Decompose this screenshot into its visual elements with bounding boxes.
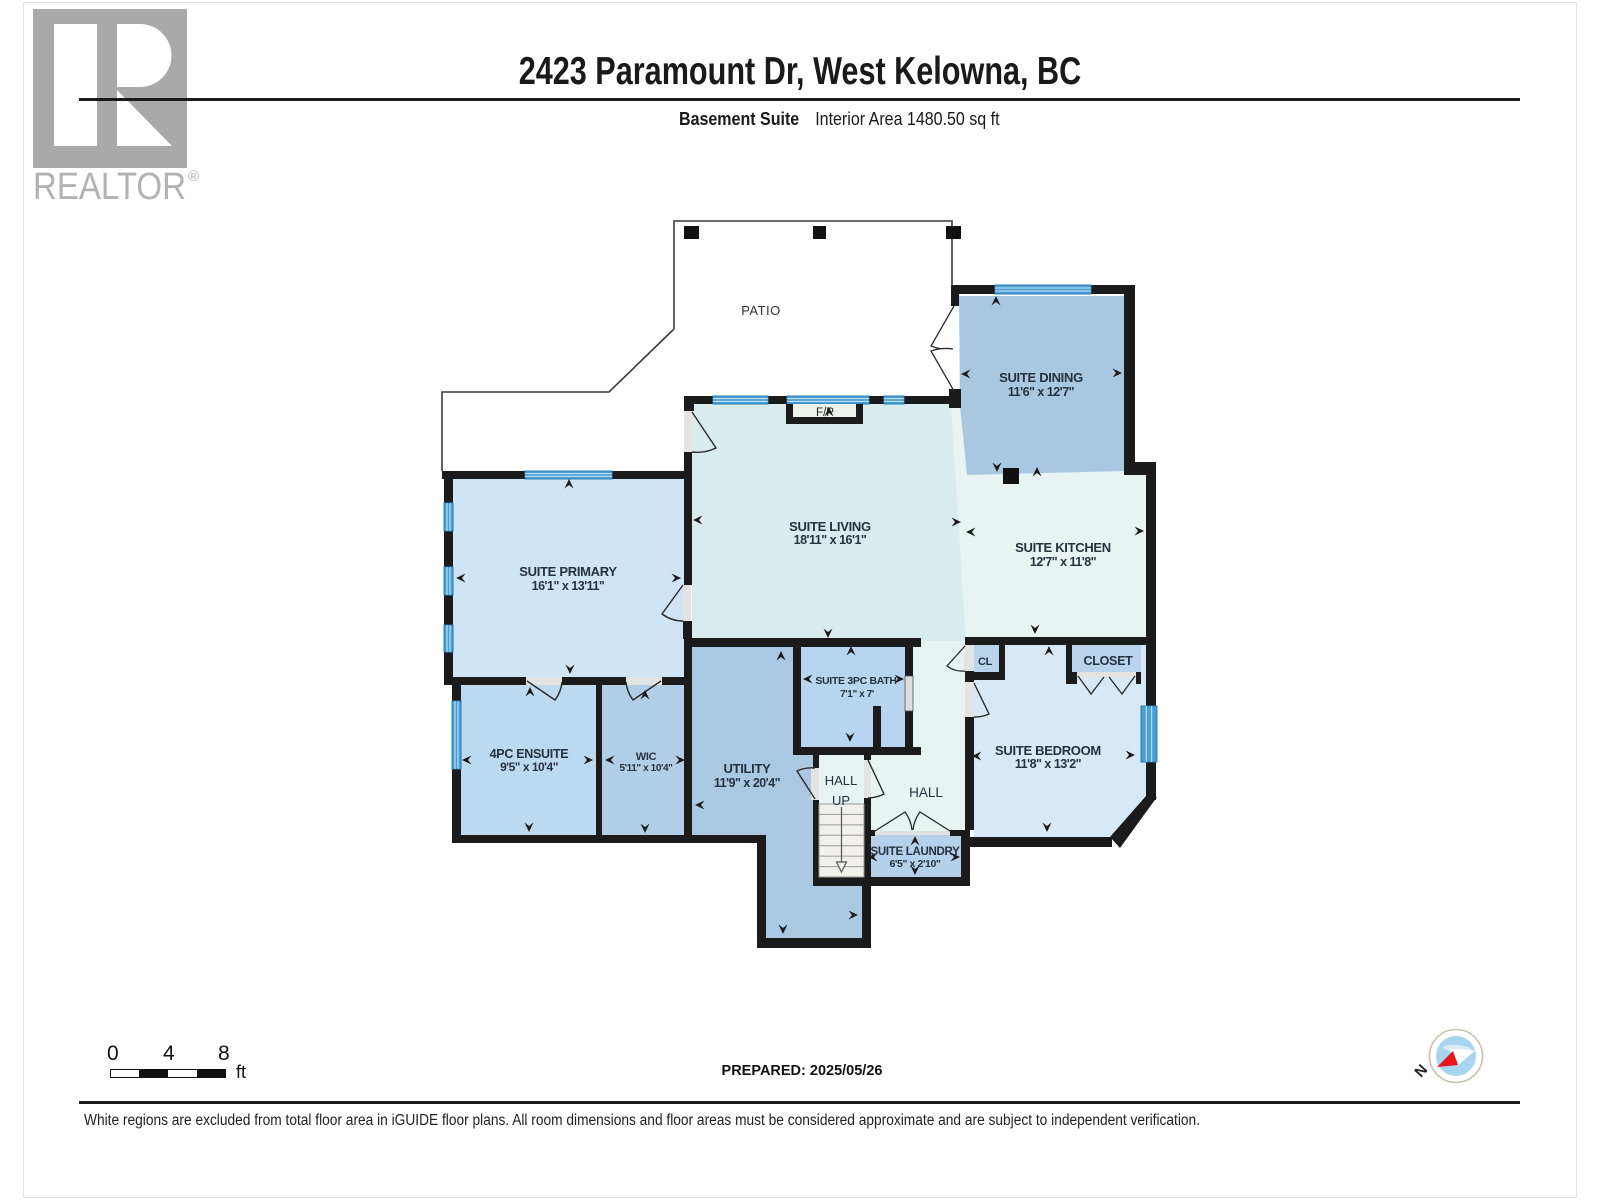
svg-text:UTILITY: UTILITY bbox=[723, 761, 771, 776]
svg-text:11'9" x 20'4": 11'9" x 20'4" bbox=[714, 776, 781, 790]
svg-text:CL: CL bbox=[978, 656, 993, 668]
svg-text:SUITE KITCHEN: SUITE KITCHEN bbox=[1015, 540, 1111, 555]
svg-text:WIC: WIC bbox=[636, 751, 657, 763]
svg-text:®: ® bbox=[188, 168, 199, 185]
svg-text:HALL: HALL bbox=[825, 773, 858, 788]
svg-text:REALTOR: REALTOR bbox=[33, 166, 186, 205]
svg-text:11'6" x 12'7": 11'6" x 12'7" bbox=[1008, 385, 1075, 399]
svg-text:18'11" x 16'1": 18'11" x 16'1" bbox=[794, 533, 867, 547]
svg-text:4PC ENSUITE: 4PC ENSUITE bbox=[490, 747, 569, 761]
svg-text:N: N bbox=[1411, 1061, 1431, 1080]
svg-text:SUITE BEDROOM: SUITE BEDROOM bbox=[995, 743, 1101, 758]
svg-text:CLOSET: CLOSET bbox=[1084, 654, 1134, 668]
svg-text:9'5" x 10'4": 9'5" x 10'4" bbox=[500, 760, 558, 774]
svg-text:SUITE LIVING: SUITE LIVING bbox=[789, 519, 871, 534]
svg-text:PATIO: PATIO bbox=[741, 303, 781, 318]
svg-text:UP: UP bbox=[832, 793, 850, 808]
svg-text:HALL: HALL bbox=[909, 785, 943, 800]
svg-text:16'1" x 13'11": 16'1" x 13'11" bbox=[532, 579, 605, 593]
svg-text:SUITE 3PC BATH: SUITE 3PC BATH bbox=[815, 675, 896, 687]
svg-text:SUITE LAUNDRY: SUITE LAUNDRY bbox=[871, 846, 961, 858]
svg-text:SUITE DINING: SUITE DINING bbox=[999, 370, 1083, 385]
svg-text:11'8" x 13'2": 11'8" x 13'2" bbox=[1015, 757, 1082, 771]
svg-text:5'11" x 10'4": 5'11" x 10'4" bbox=[620, 763, 674, 774]
svg-text:7'1" x 7': 7'1" x 7' bbox=[840, 689, 874, 700]
svg-text:SUITE PRIMARY: SUITE PRIMARY bbox=[519, 564, 617, 579]
svg-text:12'7" x 11'8": 12'7" x 11'8" bbox=[1030, 555, 1097, 569]
svg-text:6'5" x 2'10": 6'5" x 2'10" bbox=[889, 858, 940, 870]
